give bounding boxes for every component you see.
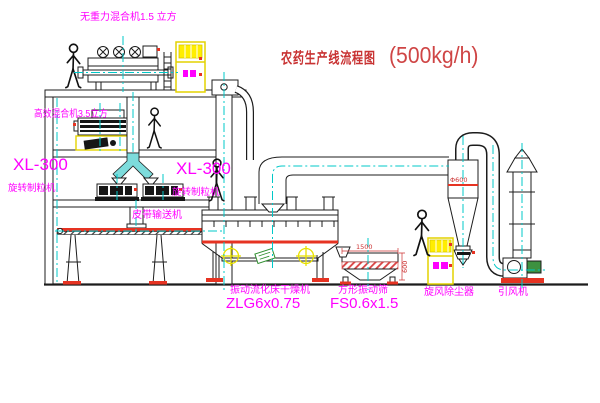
belt-conveyor xyxy=(57,228,215,285)
label-sieve-model: FS0.6x1.5 xyxy=(330,296,398,311)
worker-figure-floor2 xyxy=(148,108,162,148)
worker-figure-cyclone xyxy=(414,210,430,255)
sieve-length-dimension: 1500 xyxy=(356,243,373,251)
label-granulator-left-name: 旋转制粒机 xyxy=(8,184,56,194)
cyclone-separator xyxy=(448,139,517,270)
label-granulator-right-name: 旋转制粒机 xyxy=(172,188,220,198)
sieve-width-dimension: 600 xyxy=(401,261,409,273)
title-text: 农药生产线流程图 xyxy=(281,47,376,68)
diagram-title: 农药生产线流程图 (500kg/h) xyxy=(281,42,486,69)
elevator-discharge-chute xyxy=(236,89,250,160)
label-cyclone: 旋风除尘器 xyxy=(424,288,474,298)
control-cabinet-top xyxy=(176,42,205,92)
label-granulator-left-model: XL-300 xyxy=(13,156,68,173)
label-granulator-right-model: XL-300 xyxy=(176,160,231,177)
control-cabinet-right xyxy=(428,238,453,284)
label-fan: 引风机 xyxy=(498,288,528,298)
fan-motor xyxy=(527,261,541,273)
process-flow-diagram: 1500 600 Φ600 农药生产线流程图 (500kg/h) 无重力混合机1… xyxy=(0,0,600,403)
label-belt-conveyor: 皮带输送机 xyxy=(132,211,182,221)
label-gravity-free-mixer: 无重力混合机1.5 立方 xyxy=(80,13,177,23)
title-capacity: (500kg/h) xyxy=(389,42,478,69)
gravity-free-mixer xyxy=(78,46,173,90)
cyclone-diameter-dimension: Φ600 xyxy=(450,176,468,184)
worker-figure-top xyxy=(66,44,81,87)
square-vibrating-sieve xyxy=(336,247,405,285)
label-dryer-model: ZLG6x0.75 xyxy=(226,296,300,311)
label-high-efficiency-mixer: 高效混合机3.5立方 xyxy=(34,110,108,120)
